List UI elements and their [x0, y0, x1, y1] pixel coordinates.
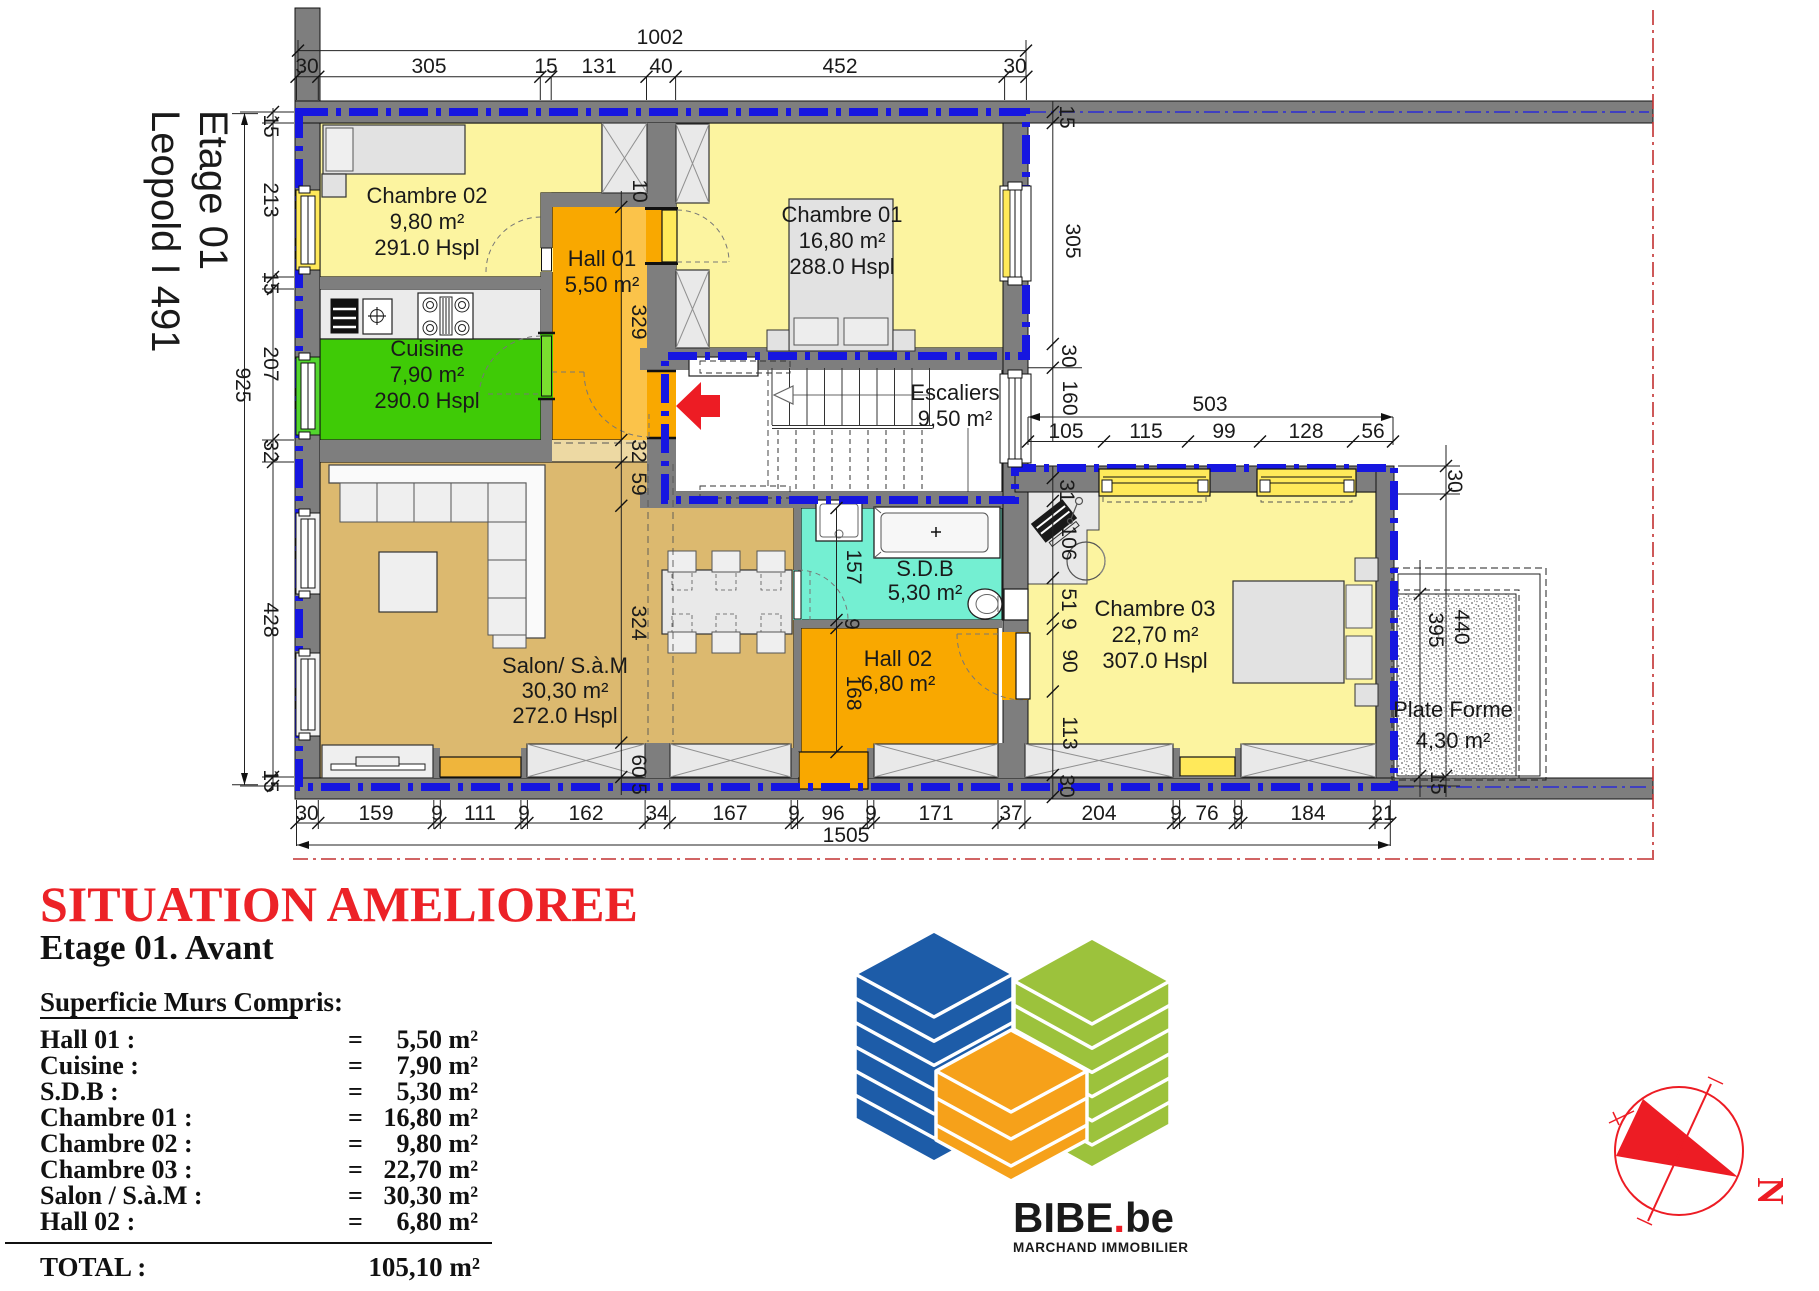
- svg-text:Chambre 03: Chambre 03: [1094, 596, 1215, 621]
- svg-text:1505: 1505: [823, 824, 870, 847]
- svg-text:160: 160: [1058, 380, 1081, 415]
- svg-text:5: 5: [627, 783, 650, 795]
- svg-text:30,30 m²: 30,30 m²: [384, 1181, 479, 1210]
- svg-text:51: 51: [1057, 588, 1080, 611]
- svg-text:Chambre 01: Chambre 01: [781, 202, 902, 227]
- svg-text:9: 9: [1170, 802, 1182, 825]
- svg-text:105: 105: [1048, 420, 1083, 443]
- svg-text:Hall 02: Hall 02: [864, 646, 932, 671]
- svg-text:106: 106: [1057, 525, 1080, 560]
- svg-text:32: 32: [627, 439, 650, 462]
- svg-text:503: 503: [1192, 393, 1227, 416]
- svg-text:307.0 Hspl: 307.0 Hspl: [1102, 648, 1207, 673]
- svg-text:15: 15: [259, 114, 282, 137]
- svg-text:BIBE.be: BIBE.be: [1013, 1194, 1174, 1241]
- svg-text:30: 30: [1055, 774, 1078, 797]
- svg-text:Salon / S.à.M :: Salon / S.à.M :: [40, 1181, 203, 1210]
- svg-text:115: 115: [1129, 420, 1162, 443]
- svg-text:Chambre 02 :: Chambre 02 :: [40, 1129, 193, 1158]
- svg-text:305: 305: [411, 55, 446, 78]
- svg-text:324: 324: [627, 605, 650, 640]
- svg-text:59: 59: [627, 472, 650, 495]
- svg-text:Chambre 01 :: Chambre 01 :: [40, 1103, 193, 1132]
- svg-text:213: 213: [259, 182, 282, 217]
- svg-text:9: 9: [788, 802, 800, 825]
- svg-text:15: 15: [259, 769, 282, 792]
- svg-text:9: 9: [518, 802, 530, 825]
- svg-text:Plate Forme: Plate Forme: [1393, 697, 1513, 722]
- svg-text:99: 99: [1212, 420, 1235, 443]
- svg-text:15: 15: [1055, 105, 1078, 128]
- svg-text:9: 9: [865, 802, 877, 825]
- svg-text:204: 204: [1081, 802, 1116, 825]
- svg-text:157: 157: [842, 549, 865, 584]
- svg-text:7,90 m²: 7,90 m²: [397, 1051, 479, 1080]
- svg-text:288.0 Hspl: 288.0 Hspl: [789, 254, 894, 279]
- svg-text:30: 30: [1003, 55, 1026, 78]
- svg-text:Hall 02 :: Hall 02 :: [40, 1207, 135, 1236]
- svg-text:428: 428: [259, 602, 282, 637]
- svg-text:37: 37: [999, 802, 1022, 825]
- svg-text:22,70 m²: 22,70 m²: [1112, 622, 1199, 647]
- svg-text:16,80 m²: 16,80 m²: [384, 1103, 479, 1132]
- svg-text:S.D.B: S.D.B: [896, 556, 953, 581]
- svg-text:290.0 Hspl: 290.0 Hspl: [374, 388, 479, 413]
- svg-text:31: 31: [1055, 479, 1078, 502]
- svg-text:291.0 Hspl: 291.0 Hspl: [374, 235, 479, 260]
- svg-text:167: 167: [712, 802, 747, 825]
- svg-text:305: 305: [1061, 223, 1084, 258]
- svg-text:S.D.B :: S.D.B :: [40, 1077, 119, 1106]
- svg-text:Superficie Murs Compris:: Superficie Murs Compris:: [40, 987, 343, 1017]
- svg-text:9,80 m²: 9,80 m²: [390, 209, 465, 234]
- svg-text:9: 9: [431, 802, 443, 825]
- svg-text:21: 21: [1371, 802, 1394, 825]
- svg-text:15: 15: [1426, 771, 1449, 794]
- svg-text:113: 113: [1058, 716, 1081, 749]
- svg-text:7,90 m²: 7,90 m²: [390, 362, 465, 387]
- svg-text:Salon/ S.à.M: Salon/ S.à.M: [502, 653, 628, 678]
- svg-text:76: 76: [1195, 802, 1218, 825]
- svg-text:=: =: [348, 1181, 363, 1210]
- svg-text:207: 207: [259, 346, 282, 381]
- svg-text:22,70 m²: 22,70 m²: [384, 1155, 479, 1184]
- svg-text:40: 40: [649, 55, 672, 78]
- svg-text:Cuisine: Cuisine: [390, 336, 463, 361]
- svg-text:15: 15: [534, 55, 557, 78]
- svg-text:TOTAL :: TOTAL :: [40, 1252, 146, 1282]
- svg-text:=: =: [348, 1077, 363, 1106]
- svg-text:60: 60: [627, 754, 650, 777]
- svg-text:Chambre 03 :: Chambre 03 :: [40, 1155, 193, 1184]
- svg-text:6,80 m²: 6,80 m²: [397, 1207, 479, 1236]
- svg-text:105,10 m²: 105,10 m²: [368, 1252, 480, 1282]
- svg-text:Etage 01: Etage 01: [191, 110, 235, 270]
- svg-text:SITUATION AMELIOREE: SITUATION AMELIOREE: [40, 876, 638, 932]
- svg-text:272.0 Hspl: 272.0 Hspl: [512, 703, 617, 728]
- svg-text:15: 15: [259, 271, 282, 294]
- svg-text:Hall 01: Hall 01: [568, 246, 636, 271]
- svg-text:32: 32: [259, 439, 282, 462]
- svg-text:Cuisine :: Cuisine :: [40, 1051, 139, 1080]
- svg-text:=: =: [348, 1051, 363, 1080]
- svg-text:MARCHAND IMMOBILIER: MARCHAND IMMOBILIER: [1013, 1240, 1189, 1255]
- svg-text:131: 131: [581, 55, 616, 78]
- svg-text:171: 171: [918, 802, 953, 825]
- svg-text:111: 111: [464, 802, 496, 825]
- svg-text:452: 452: [822, 55, 857, 78]
- svg-text:34: 34: [645, 802, 669, 825]
- svg-text:5,30 m²: 5,30 m²: [397, 1077, 479, 1106]
- svg-text:=: =: [348, 1155, 363, 1184]
- svg-text:395: 395: [1424, 612, 1447, 647]
- svg-text:6,80 m²: 6,80 m²: [861, 671, 936, 696]
- svg-text:Leopold I 491: Leopold I 491: [143, 110, 187, 352]
- svg-text:925: 925: [231, 367, 254, 402]
- svg-text:30: 30: [295, 802, 318, 825]
- svg-text:Hall 01 :: Hall 01 :: [40, 1025, 135, 1054]
- svg-text:4,30 m²: 4,30 m²: [1416, 728, 1491, 753]
- svg-text:Etage 01. Avant: Etage 01. Avant: [40, 928, 274, 967]
- svg-text:=: =: [348, 1025, 363, 1054]
- svg-text:=: =: [348, 1207, 363, 1236]
- svg-text:Escaliers: Escaliers: [910, 380, 999, 405]
- svg-text:159: 159: [358, 802, 393, 825]
- svg-text:90: 90: [1058, 649, 1081, 672]
- svg-text:5,30 m²: 5,30 m²: [888, 580, 963, 605]
- svg-text:184: 184: [1290, 802, 1325, 825]
- svg-text:9,50 m²: 9,50 m²: [918, 406, 993, 431]
- svg-text:440: 440: [1450, 609, 1473, 644]
- svg-text:162: 162: [568, 802, 603, 825]
- svg-text:9,80 m²: 9,80 m²: [397, 1129, 479, 1158]
- svg-text:128: 128: [1288, 420, 1323, 443]
- svg-text:=: =: [348, 1103, 363, 1132]
- svg-text:10: 10: [628, 179, 651, 202]
- svg-text:9: 9: [1232, 802, 1244, 825]
- svg-text:30: 30: [1057, 344, 1080, 367]
- svg-text:5,50 m²: 5,50 m²: [397, 1025, 479, 1054]
- svg-text:9: 9: [840, 618, 863, 630]
- svg-text:16,80 m²: 16,80 m²: [799, 228, 886, 253]
- svg-text:9: 9: [1057, 618, 1080, 630]
- svg-text:5,50 m²: 5,50 m²: [565, 272, 640, 297]
- svg-text:Chambre 02: Chambre 02: [366, 183, 487, 208]
- svg-text:96: 96: [821, 802, 844, 825]
- svg-text:56: 56: [1361, 420, 1384, 443]
- svg-text:N: N: [1749, 1177, 1791, 1204]
- svg-text:30: 30: [295, 55, 318, 78]
- svg-text:=: =: [348, 1129, 363, 1158]
- svg-text:1002: 1002: [637, 26, 684, 49]
- svg-text:329: 329: [627, 304, 650, 339]
- svg-text:30: 30: [1443, 469, 1466, 492]
- svg-text:30,30 m²: 30,30 m²: [522, 678, 609, 703]
